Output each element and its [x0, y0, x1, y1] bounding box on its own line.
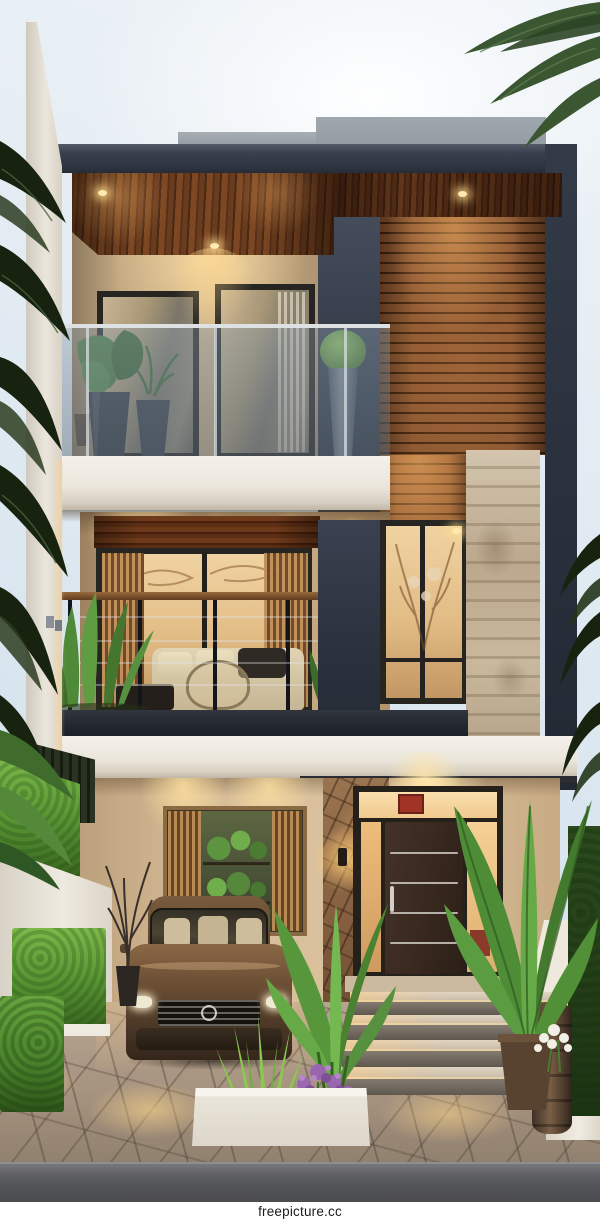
wood-soffit-left: [72, 173, 334, 255]
wood-soffit-right: [334, 173, 562, 217]
balcony-slab-upper: [52, 456, 390, 510]
branch-decor-art: [386, 530, 462, 656]
balcony-dark-fascia: [52, 710, 468, 738]
stone-column: [466, 450, 540, 776]
wood-slat-wall-lower: [380, 455, 466, 520]
watermark-bar: freepicture.cc: [0, 1202, 600, 1220]
soffit-downlight: [458, 191, 467, 197]
wood-slat-wall: [380, 214, 545, 455]
watermark-text: freepicture.cc: [258, 1204, 342, 1219]
railing-post: [86, 328, 89, 458]
house-exterior-photo: freepicture.cc: [0, 0, 600, 1220]
glass-balcony-railing: [58, 324, 390, 460]
dark-accent-column: [318, 520, 380, 724]
palm-fronds-left: [0, 135, 72, 785]
white-planter-box: [192, 1088, 370, 1146]
dry-branch-decor: [100, 848, 158, 1008]
palm-leaves-bottom-left: [0, 702, 82, 892]
white-flowers: [524, 1014, 580, 1074]
railing-post: [214, 328, 217, 458]
railing-post: [344, 328, 347, 458]
soffit-downlight: [98, 190, 107, 196]
interior-artwork: [398, 794, 424, 814]
wood-header-band: [94, 516, 320, 548]
hedge-box: [0, 996, 64, 1112]
palm-fronds-top-right: [420, 0, 600, 175]
window-transom-bar: [386, 658, 462, 662]
window-accent-light: [452, 528, 461, 534]
